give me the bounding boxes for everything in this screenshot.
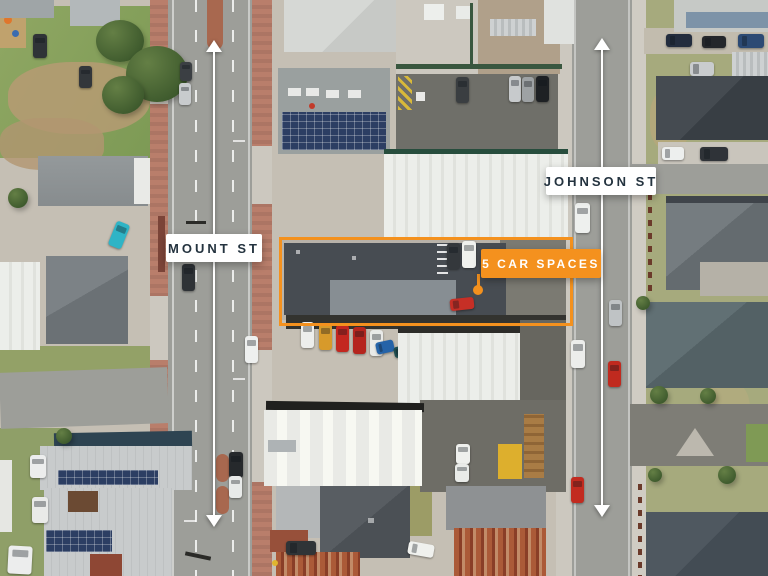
brick-wall <box>158 216 165 272</box>
road-marking <box>233 378 245 380</box>
tree <box>8 188 28 208</box>
yellow-object <box>272 560 278 566</box>
car-spaces-callout-text: 5 CAR SPACES <box>482 257 600 271</box>
road-marking <box>233 140 245 142</box>
car <box>522 77 534 102</box>
pavement-sign <box>416 92 425 101</box>
car <box>407 541 435 558</box>
mount-st-label-text: MOUNT ST <box>168 241 260 256</box>
arrowhead-down-icon <box>206 515 222 527</box>
paling-fence <box>648 194 652 292</box>
shrub <box>650 386 668 404</box>
lane-line <box>195 0 197 576</box>
rusty-roof <box>276 552 360 576</box>
car <box>571 477 584 503</box>
hedge-fence <box>396 64 562 69</box>
car <box>182 264 195 291</box>
building-roof <box>446 486 546 530</box>
warehouse-roof <box>398 333 520 403</box>
footpath <box>252 146 272 204</box>
van <box>456 444 470 464</box>
roof-edge <box>666 196 768 203</box>
car <box>33 34 47 58</box>
building-roof <box>0 262 40 350</box>
mount-st-direction-arrow <box>206 40 222 527</box>
roof-vent <box>348 90 361 98</box>
paling-fence <box>638 484 642 576</box>
tree <box>56 428 72 444</box>
road-marking <box>184 520 196 522</box>
car <box>455 464 469 482</box>
house-roof <box>46 256 128 344</box>
solar-panels <box>46 530 112 552</box>
building-roof <box>544 0 574 44</box>
callout-leader-dot <box>473 285 483 295</box>
hatched-marking <box>398 76 412 110</box>
rusty-roof <box>454 528 546 576</box>
timber-structure <box>524 414 544 478</box>
car <box>353 327 366 354</box>
car <box>738 34 764 48</box>
building-roof <box>0 460 12 532</box>
asphalt-yard <box>420 400 566 492</box>
dry-grass <box>408 486 432 536</box>
roof-vent <box>268 440 296 452</box>
van <box>575 203 590 233</box>
car <box>509 76 521 102</box>
car <box>536 76 549 102</box>
car <box>79 66 92 88</box>
johnson-st-label-text: JOHNSON ST <box>544 174 659 189</box>
building-roof <box>90 554 122 576</box>
roof-vent <box>326 90 339 98</box>
arrow-line <box>213 50 216 517</box>
van <box>30 455 46 478</box>
shrub <box>718 466 736 484</box>
car <box>319 324 332 350</box>
roof-vent <box>288 88 301 96</box>
house-roof <box>656 76 768 140</box>
car <box>108 220 131 249</box>
shrub <box>648 468 662 482</box>
arrowhead-down-icon <box>594 505 610 517</box>
side-road <box>0 367 169 429</box>
trailer <box>700 147 728 161</box>
aerial-photo: MOUNT ST JOHNSON ST 5 CAR SPACES <box>0 0 768 576</box>
shrub <box>636 296 650 310</box>
roof-vent <box>368 518 374 523</box>
building-roof <box>134 158 150 204</box>
car <box>375 339 395 354</box>
house-roof <box>646 302 768 388</box>
car <box>609 300 622 326</box>
car <box>662 147 684 160</box>
building-roof <box>0 0 54 18</box>
warehouse-roof <box>38 156 148 206</box>
tree <box>102 76 144 114</box>
house-roof <box>320 486 410 558</box>
courtyard <box>700 262 768 296</box>
house-roof <box>646 512 768 576</box>
footpath <box>150 296 168 360</box>
roof-vent <box>309 103 315 109</box>
yellow-shed <box>498 444 522 479</box>
car <box>666 34 692 47</box>
playground-equipment <box>12 30 19 37</box>
car <box>286 541 316 555</box>
car <box>690 62 714 76</box>
shrub <box>700 388 716 404</box>
car <box>702 36 726 48</box>
courtyard <box>68 491 98 512</box>
footpath <box>252 0 272 576</box>
hedge-fence <box>470 3 473 65</box>
road-edge-line <box>628 0 630 576</box>
mount-st-label: MOUNT ST <box>166 234 262 262</box>
car <box>179 83 191 105</box>
van <box>7 545 32 574</box>
caravan <box>229 476 242 498</box>
shed-roof <box>490 19 536 36</box>
van <box>32 497 48 523</box>
car <box>456 77 469 103</box>
car <box>245 336 258 363</box>
car-spaces-callout: 5 CAR SPACES <box>481 249 601 278</box>
arrow-line <box>601 48 604 507</box>
car <box>180 62 192 81</box>
median-garden <box>746 424 768 462</box>
car <box>229 452 243 478</box>
solar-panels <box>282 112 386 150</box>
car <box>336 325 349 352</box>
street-light <box>186 221 206 224</box>
house-roof <box>284 0 396 52</box>
solar-panels <box>58 470 158 485</box>
road-edge-line <box>248 0 250 576</box>
shed-roof <box>424 4 444 20</box>
johnson-st-label: JOHNSON ST <box>546 167 656 195</box>
warehouse-roof <box>384 154 568 238</box>
roof-vent <box>306 88 319 96</box>
solar-panels <box>686 12 768 28</box>
car <box>571 340 585 368</box>
